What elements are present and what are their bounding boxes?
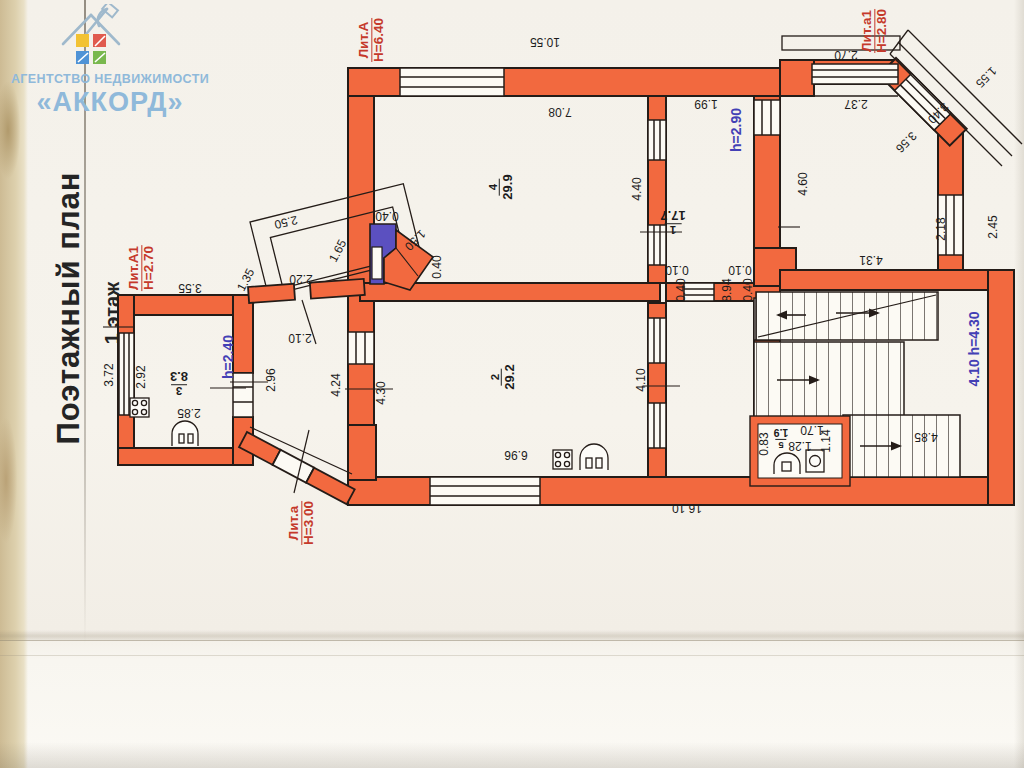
dimension-label: 0.83 — [758, 432, 771, 455]
dimension-label: 2.50 — [273, 213, 299, 231]
dimension-label: 2.18 — [935, 217, 948, 240]
dimension-label: 2.10 — [288, 332, 311, 345]
dimension-label: 8.94 — [721, 278, 734, 301]
dimension-label: 0.40 — [742, 278, 755, 301]
dimension-label: 1.14 — [820, 429, 833, 452]
dimension-label: 4.10 — [635, 368, 648, 391]
dimension-label: 1.99 — [694, 98, 717, 111]
dimension-label: 4.30 — [375, 381, 388, 404]
dimension-label: 2.20 — [289, 273, 312, 286]
dimension-label: 0.10 — [665, 264, 688, 277]
dimension-label: 4.24 — [330, 373, 343, 396]
lit-label: Лит.АН=6.40 — [357, 18, 386, 62]
dimension-label: 1.50 — [402, 227, 427, 252]
dimension-label: 4.85 — [914, 431, 937, 444]
dimension-label: 3.56 — [893, 129, 918, 154]
dimension-label: 0.40 — [375, 210, 398, 223]
room-label: 229.2 — [486, 364, 516, 389]
height-label: h=2.40 — [221, 335, 236, 379]
dimension-label: 0.10 — [728, 264, 751, 277]
dimension-label: 0.40 — [431, 255, 444, 278]
dimension-label: 2.37 — [844, 98, 867, 111]
dimension-label: 6.96 — [504, 449, 527, 462]
dimension-label: 2.92 — [135, 365, 148, 388]
lit-label: Лит.А1Н=2.70 — [127, 245, 156, 291]
dimension-label: 0.40 — [675, 278, 688, 301]
dimension-label: 2.85 — [177, 407, 200, 420]
dimension-label: 4.40 — [631, 177, 644, 200]
lit-label: Лит.аН=3.00 — [287, 501, 316, 545]
dimension-label: 4.31 — [859, 254, 882, 267]
label-layer: 10.557.081.992.702.373.552.502.202.102.8… — [0, 0, 1024, 768]
dimension-label: 10.55 — [530, 36, 560, 49]
lit-label: Лит.а1Н=2.80 — [860, 9, 889, 53]
dimension-label: 3.55 — [178, 282, 201, 295]
dimension-label: 1.28 — [788, 440, 811, 453]
dimension-label: 1.55 — [973, 64, 998, 89]
dimension-label: 1.65 — [327, 238, 349, 265]
height-label: 4.10 h=4.30 — [967, 311, 982, 386]
height-label: h=2.90 — [729, 108, 744, 152]
dimension-label: 2.45 — [987, 215, 1000, 238]
dimension-label: 3.40 — [925, 100, 950, 125]
dimension-label: 4.60 — [797, 172, 810, 195]
dimension-label: 1.35 — [235, 267, 257, 294]
dimension-label: 3.72 — [103, 363, 116, 386]
room-label: 429.9 — [484, 174, 514, 199]
dimension-label: 16.10 — [672, 502, 702, 515]
dimension-label: 7.08 — [548, 106, 571, 119]
dimension-label: 2.70 — [834, 49, 857, 62]
room-label: 38.3 — [170, 370, 188, 400]
room-label: 117.7 — [660, 209, 685, 239]
dimension-label: 2.96 — [265, 368, 278, 391]
room-label: 51.9 — [774, 427, 789, 455]
